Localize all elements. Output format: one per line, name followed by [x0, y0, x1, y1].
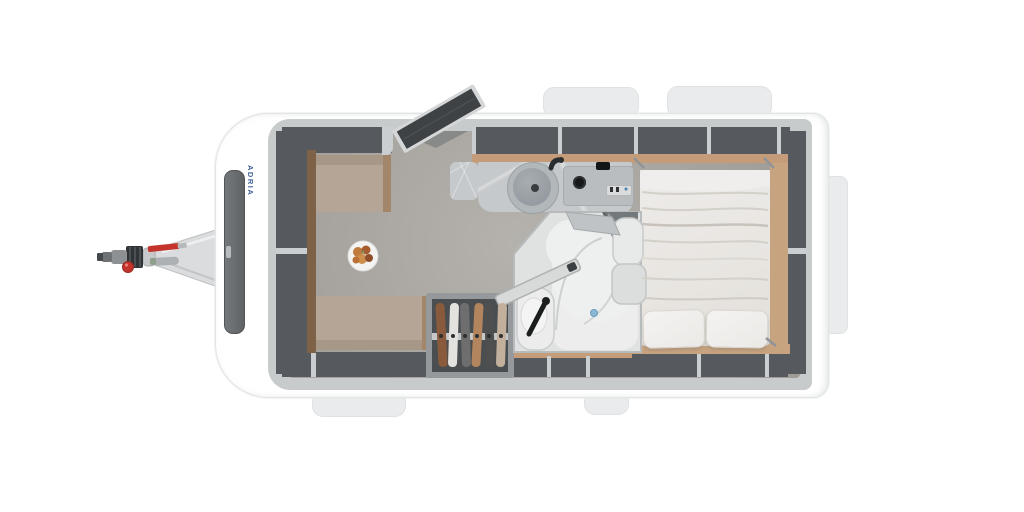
bench-wood-trim — [383, 155, 391, 212]
locker-divider — [697, 354, 701, 377]
hitch-ball-red — [123, 262, 134, 273]
jockey-wheel-handle — [150, 257, 179, 267]
locker-divider — [547, 356, 551, 377]
locker-trim — [382, 127, 393, 156]
locker-divider — [276, 248, 308, 254]
counter-side-piece — [450, 162, 478, 200]
locker-divider — [707, 127, 711, 157]
lockers-bottom-left — [282, 352, 426, 377]
locker-divider — [558, 127, 562, 157]
hob-control-black — [596, 162, 610, 170]
pillow-right — [706, 309, 769, 348]
brand-logo-text: ADRIA — [246, 165, 255, 217]
bed-side-shelf — [770, 163, 788, 348]
dinette-wood-side — [307, 150, 316, 353]
bench-backrest — [316, 340, 422, 350]
locker-divider — [311, 352, 316, 377]
locker-divider — [586, 356, 590, 377]
caravan-floorplan: ADRIA — [0, 0, 1024, 512]
control-panel — [606, 185, 632, 196]
locker-divider — [472, 127, 476, 157]
locker-divider — [765, 354, 769, 377]
overhead-lockers-top — [472, 127, 790, 157]
overhead-locker-front — [282, 127, 392, 153]
bench-backrest — [316, 155, 383, 165]
window-latch — [226, 246, 231, 258]
lockers-under-bathroom — [514, 358, 632, 377]
locker-divider — [788, 248, 806, 254]
wardrobe-rail — [432, 333, 508, 340]
bathroom-shelf-edge — [514, 352, 632, 358]
pillow-left — [643, 309, 706, 349]
sink-drain — [531, 184, 539, 192]
locker-divider — [777, 127, 781, 157]
hitch-coupler — [97, 246, 143, 268]
hob-knob — [573, 176, 586, 189]
locker-divider — [634, 127, 638, 157]
